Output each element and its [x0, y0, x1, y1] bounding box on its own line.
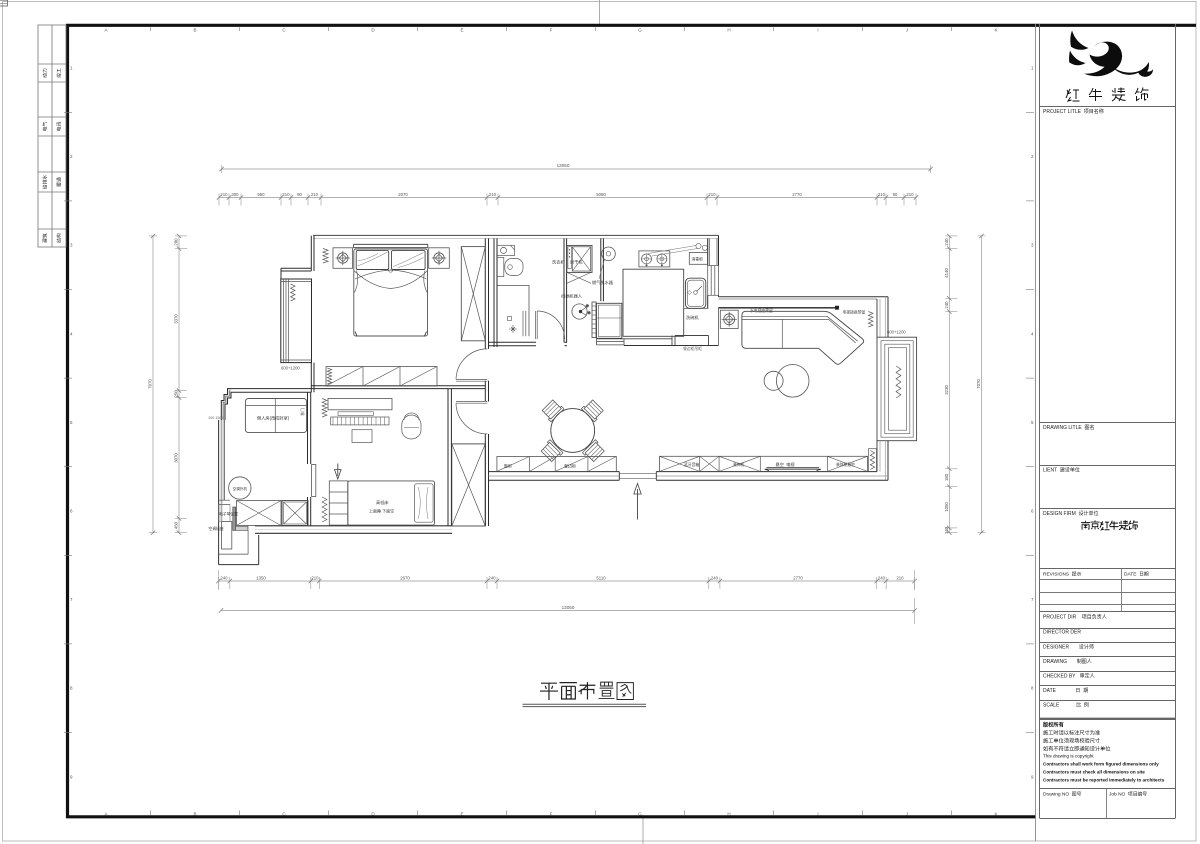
svg-text:空调外机: 空调外机 [233, 486, 248, 491]
svg-text:2770: 2770 [792, 192, 802, 197]
svg-text:PROJECT DIR 项目负责人: PROJECT DIR 项目负责人 [1043, 614, 1107, 621]
svg-text:Contractors must be reported i: Contractors must be reported immediately… [1043, 778, 1165, 783]
svg-text:装饰柜: 装饰柜 [733, 462, 745, 467]
svg-text:100 1500: 100 1500 [208, 416, 224, 420]
svg-text:5060: 5060 [596, 192, 606, 197]
svg-text:210: 210 [906, 192, 914, 197]
svg-text:250: 250 [174, 390, 179, 398]
svg-text:佣人房(改成卧室): 佣人房(改成卧室) [257, 415, 290, 422]
svg-text:动力: 动力 [42, 68, 49, 78]
svg-text:REVISIONS 提示: REVISIONS 提示 [1043, 571, 1082, 578]
svg-text:PROJECT LITLE 项目名称: PROJECT LITLE 项目名称 [1043, 108, 1104, 115]
svg-text:3230: 3230 [944, 385, 949, 395]
svg-text:K: K [994, 812, 997, 817]
svg-text:DIRECTOR DER: DIRECTOR DER [1043, 630, 1081, 636]
svg-text:如有不符请立即通知设计单位: 如有不符请立即通知设计单位 [1043, 745, 1110, 753]
svg-text:210: 210 [878, 192, 886, 197]
svg-text:暖通: 暖通 [56, 177, 63, 187]
svg-text:Job NO 项目编号: Job NO 项目编号 [1109, 791, 1147, 798]
svg-text:B: B [193, 28, 196, 33]
svg-text:悬空 电视: 悬空 电视 [776, 461, 796, 468]
svg-text:240: 240 [878, 576, 886, 581]
svg-text:950: 950 [257, 192, 265, 197]
svg-text:210: 210 [311, 192, 319, 197]
svg-text:G: G [638, 812, 642, 817]
svg-text:240: 240 [711, 576, 719, 581]
svg-text:A: A [104, 28, 107, 33]
svg-text:5110: 5110 [596, 576, 606, 581]
svg-text:DRAWING 制图人: DRAWING 制图人 [1043, 658, 1092, 665]
svg-text:240: 240 [488, 576, 496, 581]
svg-text:鞋柜: 鞋柜 [504, 463, 512, 469]
svg-text:210: 210 [489, 192, 497, 197]
svg-text:4140: 4140 [944, 268, 949, 278]
svg-text:DESIGNER 设计师: DESIGNER 设计师 [1043, 644, 1094, 651]
svg-text:施工时请以标注尺寸为准: 施工时请以标注尺寸为准 [1043, 729, 1100, 737]
svg-text:7070: 7070 [976, 379, 981, 389]
svg-text:2670: 2670 [400, 576, 410, 581]
svg-text:I: I [817, 812, 818, 817]
svg-text:电讯: 电讯 [56, 122, 63, 132]
svg-text:180: 180 [944, 473, 949, 481]
svg-text:90: 90 [893, 192, 898, 197]
svg-text:SCALE 比 例: SCALE 比 例 [1043, 702, 1089, 709]
svg-text:450: 450 [174, 521, 179, 529]
svg-text:空调插座: 空调插座 [209, 526, 224, 531]
svg-text:装饰柜悬空: 装饰柜悬空 [836, 462, 855, 467]
svg-text:洗衣机: 洗衣机 [552, 259, 565, 266]
svg-text:600+1200: 600+1200 [281, 366, 300, 371]
svg-text:移门: 移门 [300, 408, 305, 416]
svg-text:210: 210 [220, 192, 228, 197]
svg-text:1350: 1350 [256, 576, 266, 581]
svg-text:240: 240 [944, 238, 949, 246]
svg-text:B: B [193, 812, 196, 817]
svg-text:DRAWING LITLE 图名: DRAWING LITLE 图名 [1043, 424, 1095, 431]
svg-text:240: 240 [220, 576, 228, 581]
svg-text:210: 210 [896, 576, 904, 581]
svg-text:E: E [460, 812, 463, 817]
svg-text:240: 240 [944, 301, 949, 309]
svg-text:Contractors must check all dim: Contractors must check all dimensions on… [1043, 770, 1145, 775]
svg-text:300: 300 [231, 192, 239, 197]
svg-text:扫地机器人: 扫地机器人 [561, 293, 583, 300]
svg-text:210: 210 [708, 192, 716, 197]
svg-text:210: 210 [311, 576, 319, 581]
svg-text:1050: 1050 [944, 502, 949, 512]
svg-text:Contractors shall work form fi: Contractors shall work form figured dime… [1043, 762, 1159, 767]
svg-text:燃气热水器: 燃气热水器 [592, 279, 614, 286]
svg-text:DATE 日 期: DATE 日 期 [1043, 688, 1088, 694]
svg-text:烘干机: 烘干机 [570, 259, 583, 266]
svg-text:结构: 结构 [56, 233, 63, 243]
svg-text:I: I [817, 28, 818, 33]
svg-text:E: E [460, 28, 463, 33]
svg-text:J: J [906, 28, 908, 33]
svg-text:电视插座预留: 电视插座预留 [843, 309, 866, 314]
svg-text:电子琴位置: 电子琴位置 [219, 512, 238, 517]
svg-text:餐边柜吊柜: 餐边柜吊柜 [683, 346, 702, 351]
svg-text:版权所有: 版权所有 [1042, 721, 1064, 729]
svg-text:7070: 7070 [148, 379, 153, 389]
svg-text:3370: 3370 [174, 314, 179, 324]
svg-text:280: 280 [174, 238, 179, 246]
svg-text:140: 140 [944, 526, 949, 534]
svg-text:600+1200: 600+1200 [887, 330, 906, 335]
svg-text:3070: 3070 [174, 453, 179, 463]
svg-text:K: K [994, 28, 997, 33]
svg-text:电气: 电气 [42, 122, 49, 132]
svg-text:2770: 2770 [793, 576, 803, 581]
svg-text:蓝牙音箱: 蓝牙音箱 [684, 462, 699, 467]
svg-text:施工单位须现场校验尺寸: 施工单位须现场校验尺寸 [1043, 737, 1100, 745]
svg-text:F: F [550, 28, 553, 33]
svg-text:建筑: 建筑 [42, 233, 49, 243]
svg-text:90: 90 [297, 192, 302, 197]
svg-text:13050: 13050 [557, 163, 570, 168]
svg-text:Drawing NO 图号: Drawing NO 图号 [1043, 792, 1082, 798]
svg-text:F: F [550, 812, 553, 817]
svg-text:消毒柜: 消毒柜 [692, 257, 704, 262]
svg-text:This drawing is copyright: This drawing is copyright [1043, 754, 1094, 759]
svg-text:给排水: 给排水 [42, 175, 49, 190]
svg-text:210: 210 [282, 192, 290, 197]
svg-text:DESIGN FIRM 设计单位: DESIGN FIRM 设计单位 [1043, 510, 1099, 517]
svg-text:H: H [727, 28, 730, 33]
svg-text:上面睡 下面空: 上面睡 下面空 [369, 508, 394, 514]
svg-text:竣工: 竣工 [56, 68, 63, 78]
svg-text:13050: 13050 [562, 605, 575, 610]
svg-text:H: H [727, 812, 730, 817]
svg-text:A: A [104, 812, 107, 817]
svg-text:DATE 日期: DATE 日期 [1124, 572, 1149, 578]
svg-text:G: G [638, 28, 642, 33]
svg-text:餐边柜: 餐边柜 [564, 463, 576, 469]
svg-text:2070: 2070 [398, 192, 408, 197]
svg-text:洗碗机: 洗碗机 [686, 314, 699, 321]
svg-text:水电插座预留: 水电插座预留 [750, 308, 773, 313]
svg-text:高低床: 高低床 [376, 499, 389, 506]
svg-text:CHECKED BY 审定人: CHECKED BY 审定人 [1043, 673, 1095, 680]
svg-text:J: J [906, 812, 908, 817]
svg-text:LIENT 建设单位: LIENT 建设单位 [1043, 467, 1080, 474]
